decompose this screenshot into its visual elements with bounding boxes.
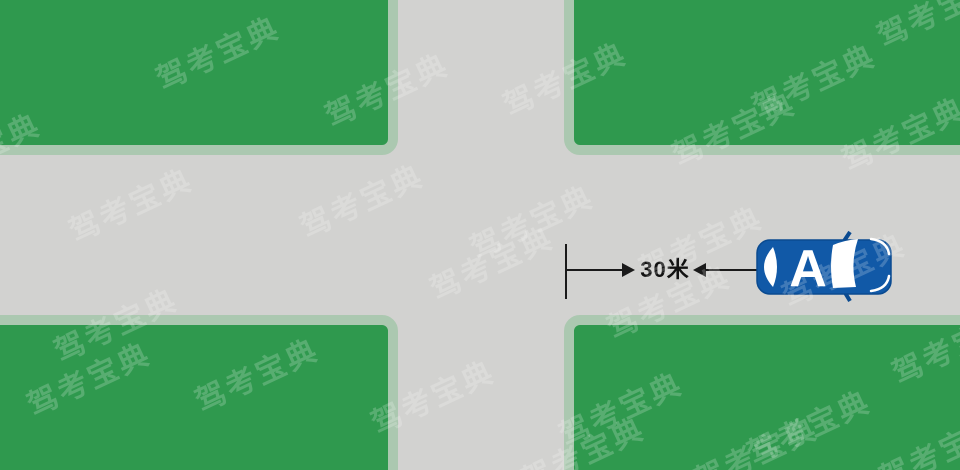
watermark-text: 驾考宝典 (61, 155, 199, 251)
watermark-text: 驾考宝典 (292, 151, 430, 247)
grass-block-bottom-left (0, 315, 398, 470)
car-label: A (789, 240, 827, 298)
dimension-line-right (706, 269, 758, 271)
intersection-edge-tick (565, 244, 567, 299)
intersection-diagram: 30米 <-- car --> 30米 A 驾考宝典驾考宝典驾考宝典驾考宝典驾考… (0, 0, 960, 470)
car-a: A (755, 228, 895, 306)
distance-label: 30米 (634, 257, 696, 283)
arrowhead-left-icon (693, 263, 706, 277)
grass-block-bottom-right (564, 315, 960, 470)
grass-block-top-left (0, 0, 398, 155)
watermark-text: 驾考宝典 (422, 213, 560, 309)
watermark-text: 驾考宝典 (462, 172, 600, 268)
dimension-line-left (566, 269, 623, 271)
grass-block-top-right (564, 0, 960, 155)
